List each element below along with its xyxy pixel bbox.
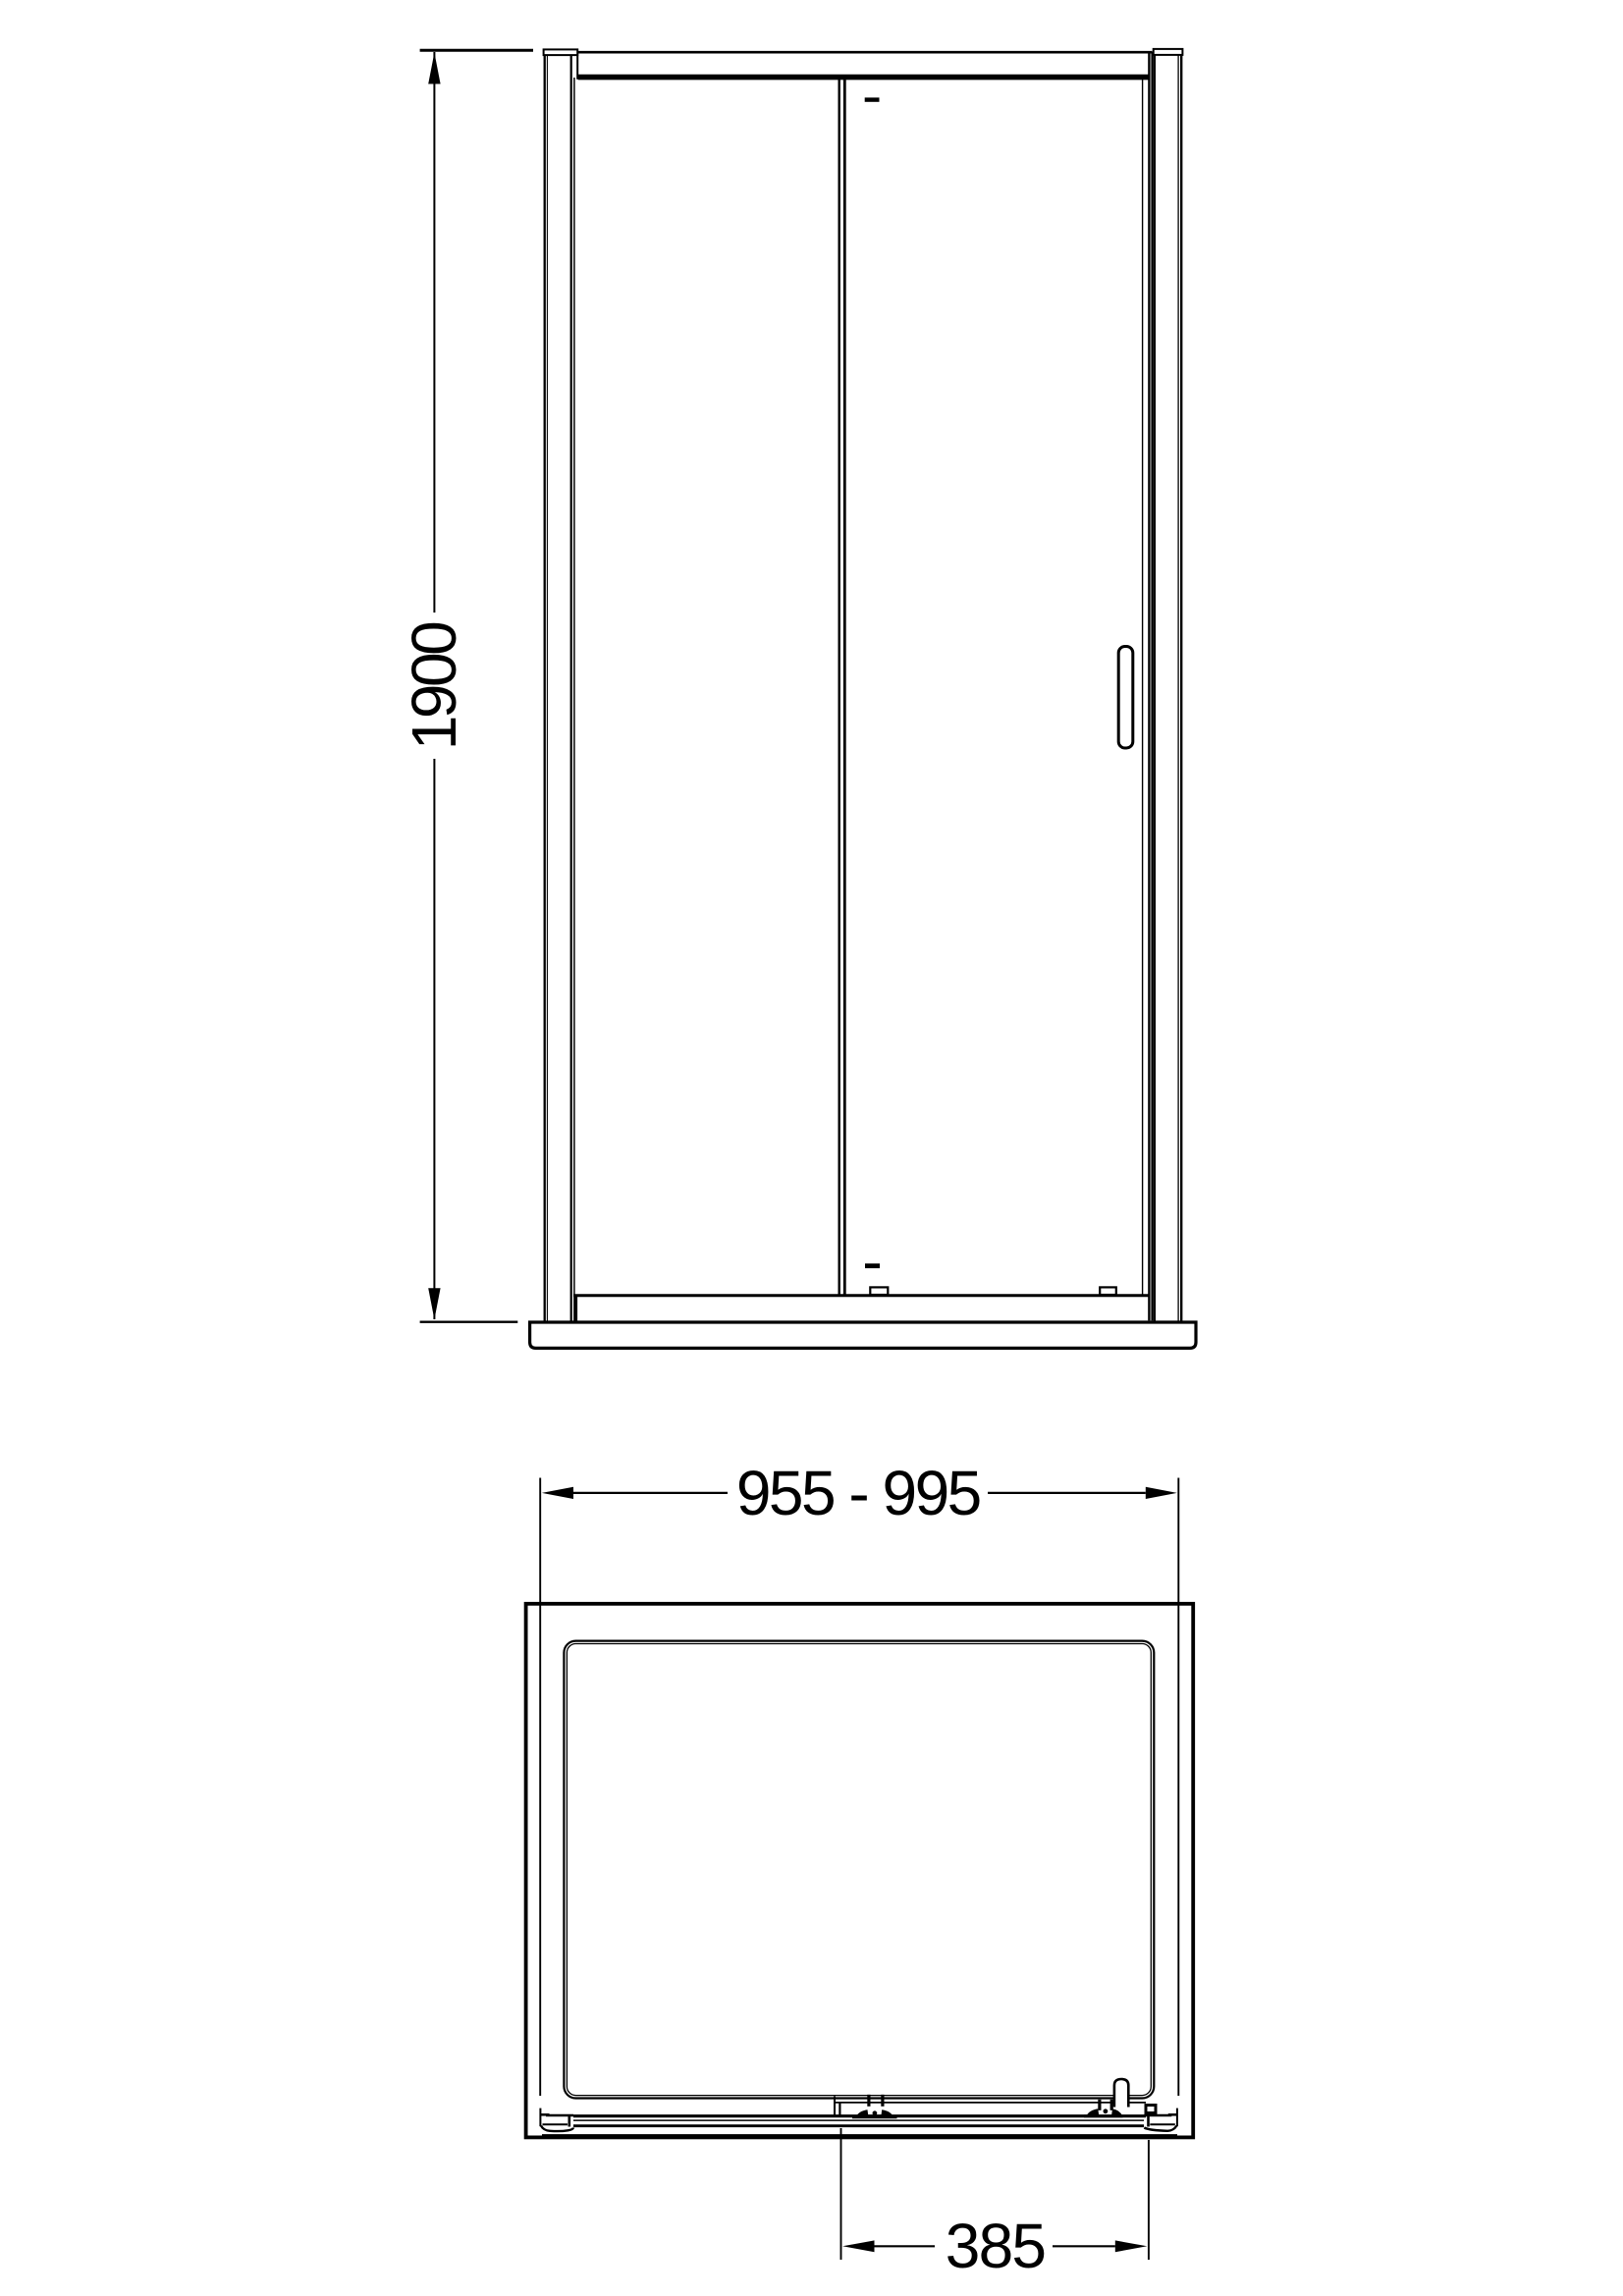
svg-text:385: 385 (946, 2211, 1045, 2281)
svg-text:955 - 995: 955 - 995 (736, 1458, 980, 1528)
svg-text:1900: 1900 (399, 622, 469, 750)
